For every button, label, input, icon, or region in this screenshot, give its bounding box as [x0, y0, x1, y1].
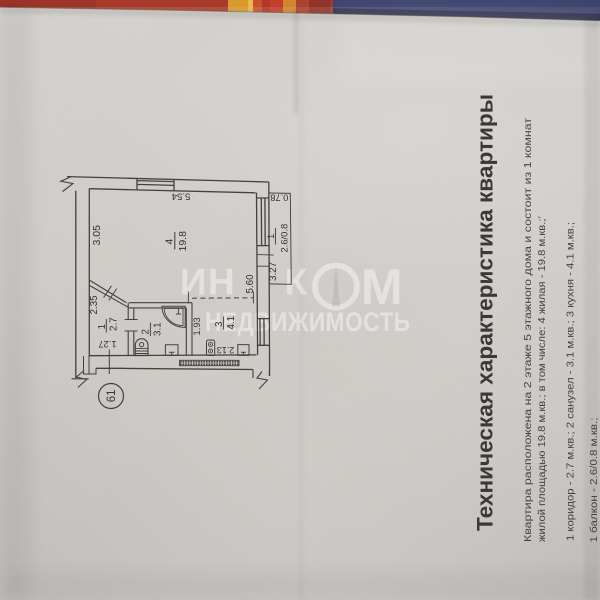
svg-text:1.93: 1.93: [191, 317, 202, 335]
svg-text:5.54: 5.54: [171, 190, 190, 201]
svg-text:1 коридор - 2.7 м.кв.; 2 с: 1 коридор - 2.7 м.кв.; 2 санузел - 3.1 м…: [566, 222, 577, 541]
svg-text:3.27: 3.27: [268, 262, 279, 281]
svg-text:И: И: [180, 262, 207, 303]
svg-text:Н: Н: [208, 262, 235, 303]
svg-text:К: К: [285, 262, 308, 303]
svg-text:3.1: 3.1: [152, 322, 163, 336]
svg-text:5.60: 5.60: [245, 274, 256, 294]
svg-text:Техническая характеристика ква: Техническая характеристика квартиры: [473, 94, 498, 531]
svg-text:2.6/0.8: 2.6/0.8: [278, 224, 289, 253]
svg-text:1 балкон - 2.6/0.8 м.кв.;: 1 балкон - 2.6/0.8 м.кв.;: [588, 418, 600, 543]
svg-text:2.35: 2.35: [89, 295, 100, 315]
svg-text:Квартира расположена на 2: Квартира расположена на 2 этаже 5 этажно…: [523, 118, 534, 542]
svg-text:2.7: 2.7: [109, 317, 120, 331]
svg-text:1: 1: [265, 234, 276, 239]
svg-text:жилой площадью 19.8 м.кв.; в т: жилой площадью 19.8 м.кв.; в том числе: …: [537, 216, 548, 542]
svg-text:2.13: 2.13: [217, 345, 235, 355]
svg-text:3.05: 3.05: [91, 225, 103, 246]
svg-text:4.1: 4.1: [226, 316, 237, 330]
svg-text:19.8: 19.8: [177, 231, 189, 252]
svg-text:61: 61: [106, 390, 118, 403]
svg-text:0.78: 0.78: [270, 193, 288, 203]
svg-text:1.27: 1.27: [98, 339, 116, 350]
svg-text:4: 4: [164, 239, 176, 245]
